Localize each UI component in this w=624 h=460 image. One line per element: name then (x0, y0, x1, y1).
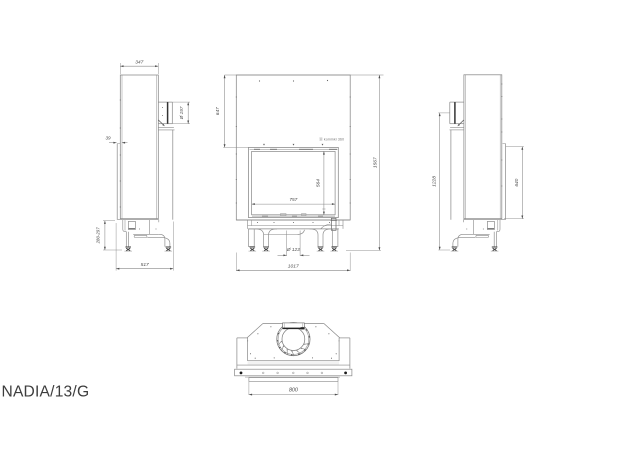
svg-text:564: 564 (315, 179, 321, 187)
svg-text:800: 800 (289, 387, 298, 393)
svg-text:280-297: 280-297 (96, 227, 101, 245)
svg-text:347: 347 (135, 59, 143, 65)
svg-text:1228: 1228 (431, 176, 437, 187)
svg-text:39: 39 (105, 136, 111, 141)
svg-text:Ø 123: Ø 123 (286, 247, 300, 252)
svg-text:Ø 197: Ø 197 (179, 106, 184, 120)
svg-text:1567: 1567 (372, 157, 378, 168)
svg-text:647: 647 (215, 107, 221, 115)
svg-text:NADIA/13/G: NADIA/13/G (2, 383, 90, 400)
svg-text:640: 640 (514, 178, 520, 186)
svg-text:1017: 1017 (288, 263, 299, 269)
svg-text:517: 517 (141, 262, 149, 268)
svg-text:757: 757 (289, 197, 297, 203)
svg-text:Ⓤ kominki 360: Ⓤ kominki 360 (319, 136, 344, 141)
